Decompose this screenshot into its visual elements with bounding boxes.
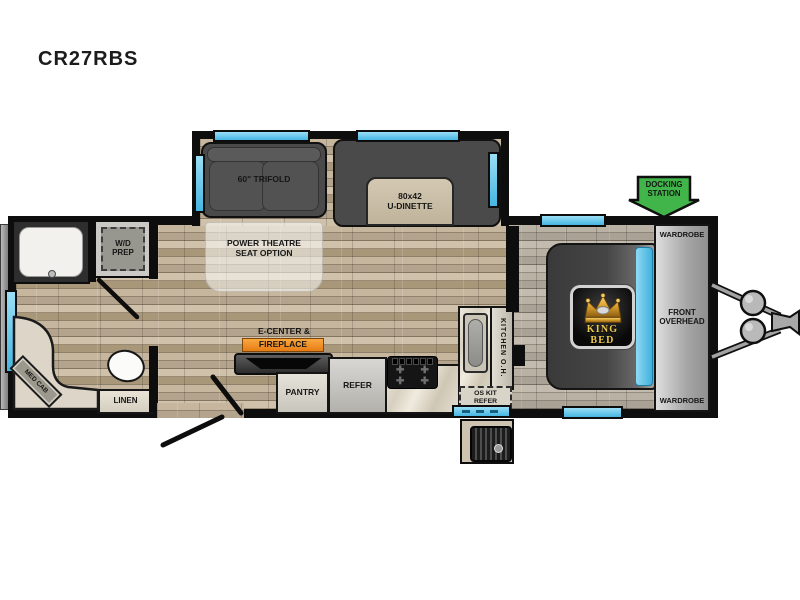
front-overhead-cabinet: WARDROBE FRONT OVERHEAD WARDROBE [654, 224, 710, 412]
bed-pillows [635, 247, 653, 386]
propane-tank [741, 319, 765, 343]
pantry-label: PANTRY [286, 388, 320, 398]
cooktop-stove: ✚✚✚✚ [387, 356, 438, 389]
linen-cabinet: LINEN [98, 389, 153, 414]
tank-highlight [745, 323, 753, 331]
tank-highlight [745, 295, 753, 303]
sofa-seat-cushion [209, 161, 266, 211]
propane-tank [741, 291, 765, 315]
king-bed-label: KING BED [573, 324, 632, 346]
ecenter-label: E-CENTER & [238, 327, 330, 337]
wardrobe-top-label: WARDROBE [656, 231, 708, 239]
os-kit-label2: REFER [474, 398, 497, 406]
griddle-knob [494, 444, 503, 453]
sink-basin [468, 319, 483, 367]
trifold-label: 60" TRIFOLD [238, 175, 291, 185]
kitchen-overhead-cabinet: KITCHEN O.H. [490, 306, 514, 390]
window-bedroom-bottom [562, 406, 623, 419]
hatch-dash-pattern [462, 410, 501, 413]
docking-station-callout: DOCKING STATION [630, 181, 698, 198]
window-slide-right-side [488, 152, 499, 208]
wardrobe-bottom-label: WARDROBE [656, 397, 708, 405]
sofa-seat-cushion [262, 161, 319, 211]
window-rear-side [5, 290, 17, 373]
bedroom-wall-lower [512, 345, 525, 366]
tv-icon [246, 358, 322, 369]
bedroom-wall-upper [506, 226, 519, 312]
hitch-coupler [772, 311, 799, 334]
entry-doorway [157, 403, 244, 418]
dinette-name-label: U-DINETTE [387, 202, 432, 212]
front-overhead-label2: OVERHEAD [656, 318, 708, 327]
docking-label2: STATION [630, 190, 698, 199]
stove-burners: ✚✚✚✚ [388, 365, 437, 387]
trifold-sofa: 60" TRIFOLD [201, 142, 327, 218]
window-slide-left-side [194, 154, 205, 213]
linen-label: LINEN [114, 397, 138, 406]
bath-wall [88, 220, 96, 282]
pantry-cabinet: PANTRY [276, 372, 329, 414]
shower [12, 220, 90, 284]
outside-kitchen-unit [460, 419, 514, 464]
hitch-aframe [712, 285, 799, 357]
window-bedroom-top [540, 214, 606, 227]
floorplan-model-title: CR27RBS [38, 48, 138, 70]
outside-griddle [470, 426, 512, 462]
shower-drain [48, 270, 56, 278]
window-slide-left-top [213, 130, 310, 142]
outside-kitchen-hatch [452, 405, 511, 418]
crown-icon [581, 293, 625, 323]
stove-knobs [388, 358, 437, 365]
power-theatre-label2: SEAT OPTION [206, 249, 322, 259]
refer-label: REFER [343, 381, 372, 391]
fireplace: FIREPLACE [242, 338, 324, 352]
kitchen-sink [463, 313, 488, 373]
entry-door-outer [163, 417, 222, 445]
window-slide-right-top [356, 130, 460, 142]
washer-dryer-prep: W/D PREP [94, 220, 152, 278]
wd-prep-label2: PREP [112, 249, 134, 258]
dinette-table: 80x42 U-DINETTE [366, 177, 454, 226]
fireplace-label: FIREPLACE [259, 340, 307, 350]
bath-wall-upper [149, 220, 158, 279]
power-theatre-option-overlay: POWER THEATRE SEAT OPTION [205, 222, 323, 292]
kitchen-overhead-label: KITCHEN O.H. [498, 318, 506, 377]
os-kit-label: OS KIT [474, 390, 497, 398]
king-bed-badge: KING BED [570, 285, 635, 349]
sofa-back-cushion [207, 147, 321, 162]
refrigerator: REFER [328, 357, 387, 414]
